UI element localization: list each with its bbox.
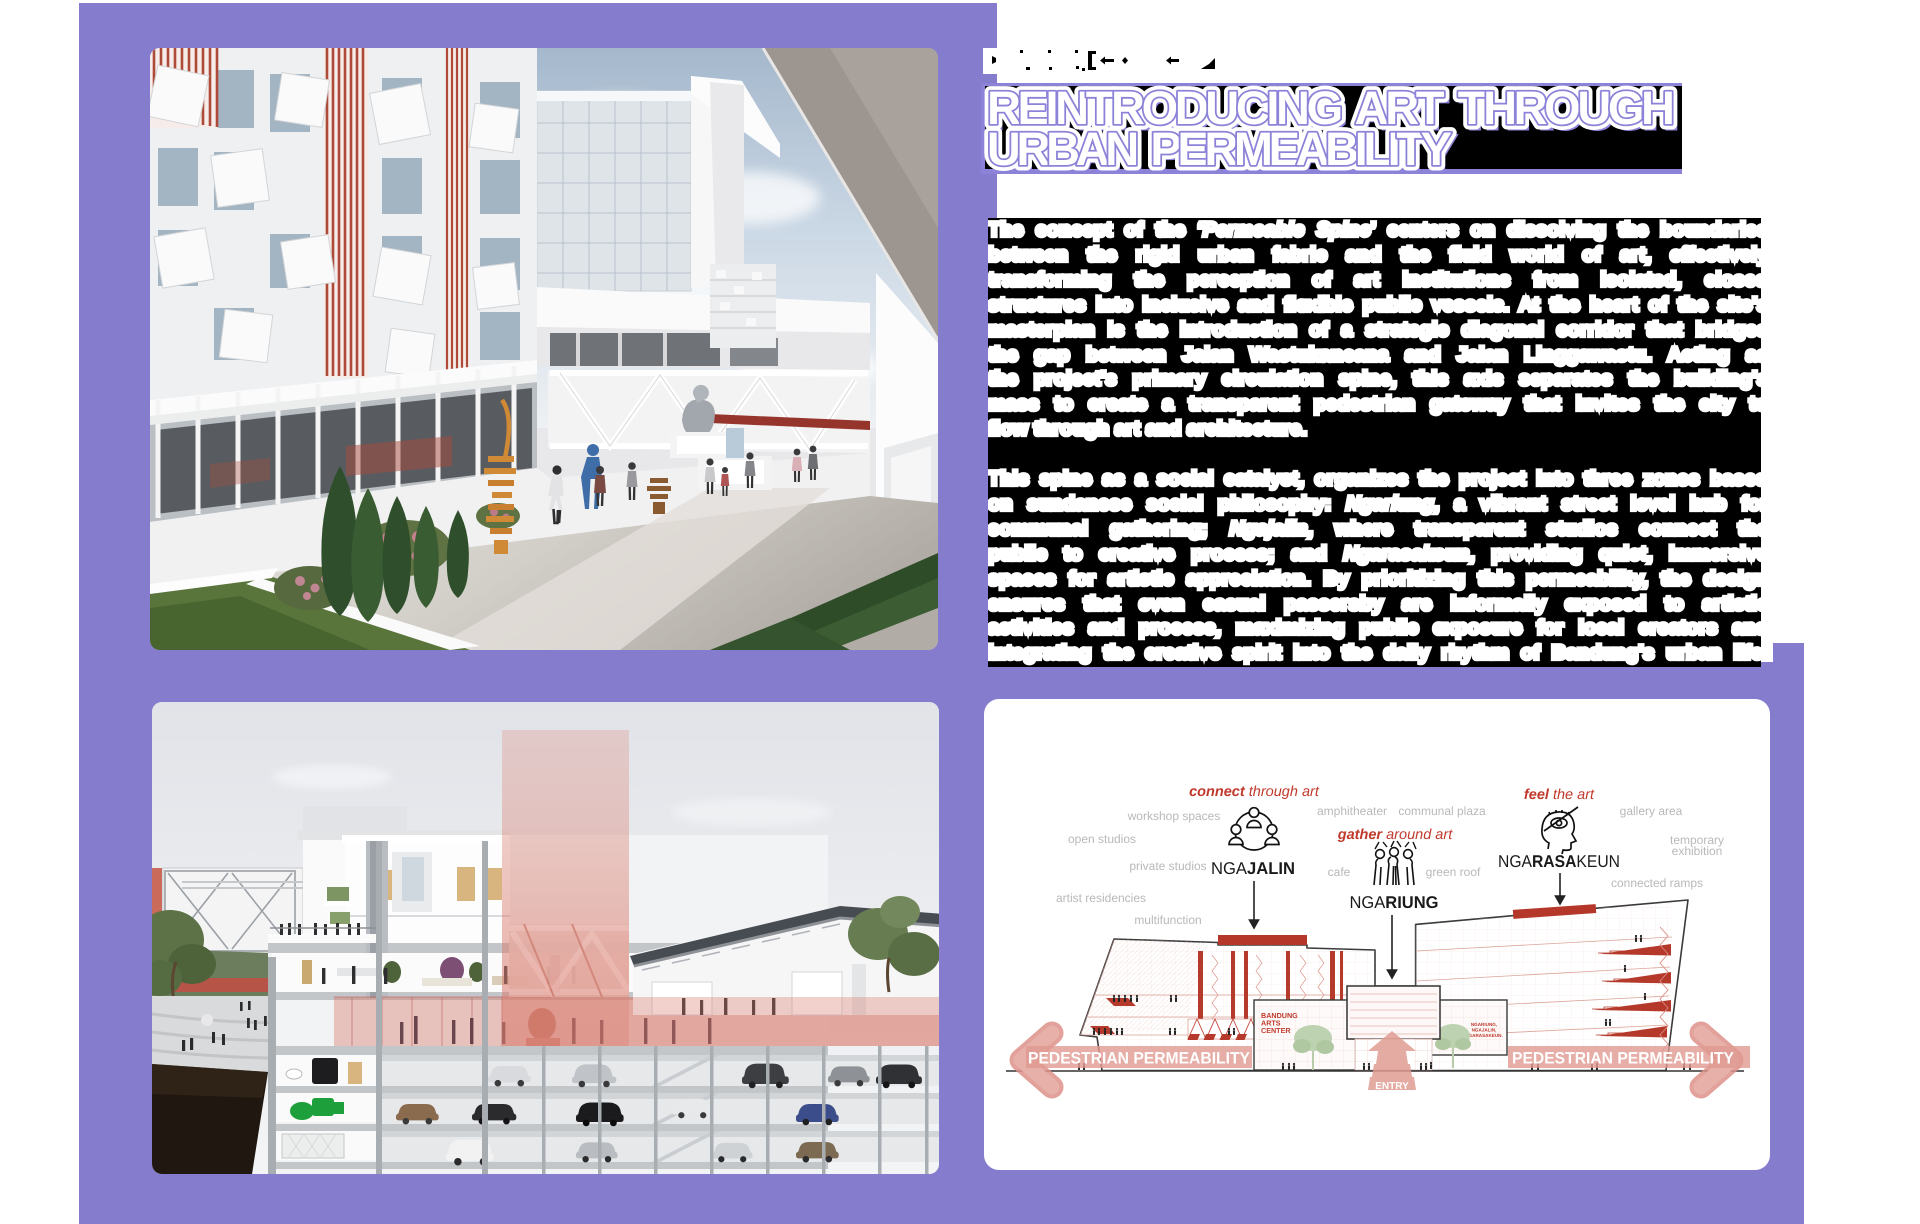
svg-text:green roof: green roof	[1426, 865, 1481, 879]
svg-text:PEDESTRIAN PERMEABILITY: PEDESTRIAN PERMEABILITY	[1028, 1050, 1250, 1068]
svg-text:gather around art: gather around art	[1337, 827, 1453, 843]
svg-text:connected ramps: connected ramps	[1611, 876, 1703, 890]
svg-text:gallery area: gallery area	[1620, 804, 1683, 818]
svg-text:multifunction: multifunction	[1134, 913, 1201, 927]
svg-text:feel the art: feel the art	[1524, 787, 1595, 803]
svg-text:CENTER: CENTER	[1261, 1026, 1291, 1035]
svg-text:private studios: private studios	[1129, 859, 1206, 873]
svg-text:open studios: open studios	[1068, 832, 1136, 846]
svg-text:exhibition: exhibition	[1672, 844, 1723, 858]
svg-text:cafe: cafe	[1328, 865, 1351, 879]
svg-text:artist residencies: artist residencies	[1056, 891, 1146, 905]
svg-text:URBAN PERMEABILITY: URBAN PERMEABILITY	[987, 122, 1452, 175]
svg-text:NGARIUNG: NGARIUNG	[1350, 893, 1439, 912]
svg-text:communal plaza: communal plaza	[1398, 804, 1486, 818]
svg-text:NGAJALIN: NGAJALIN	[1211, 859, 1295, 878]
svg-text:workshop spaces: workshop spaces	[1127, 809, 1221, 823]
svg-text:NGARASAKEUN.: NGARASAKEUN.	[1465, 1033, 1503, 1038]
svg-text:connect through art: connect through art	[1189, 784, 1320, 800]
svg-text:PEDESTRIAN PERMEABILITY: PEDESTRIAN PERMEABILITY	[1512, 1050, 1734, 1068]
svg-text:NGARIUNG,: NGARIUNG,	[1471, 1022, 1497, 1027]
svg-text:NGAJALIN,: NGAJALIN,	[1472, 1028, 1497, 1033]
svg-text:NGARASAKEUN: NGARASAKEUN	[1498, 852, 1620, 871]
svg-text:amphitheater: amphitheater	[1317, 804, 1387, 818]
svg-text:ENTRY: ENTRY	[1375, 1081, 1409, 1092]
